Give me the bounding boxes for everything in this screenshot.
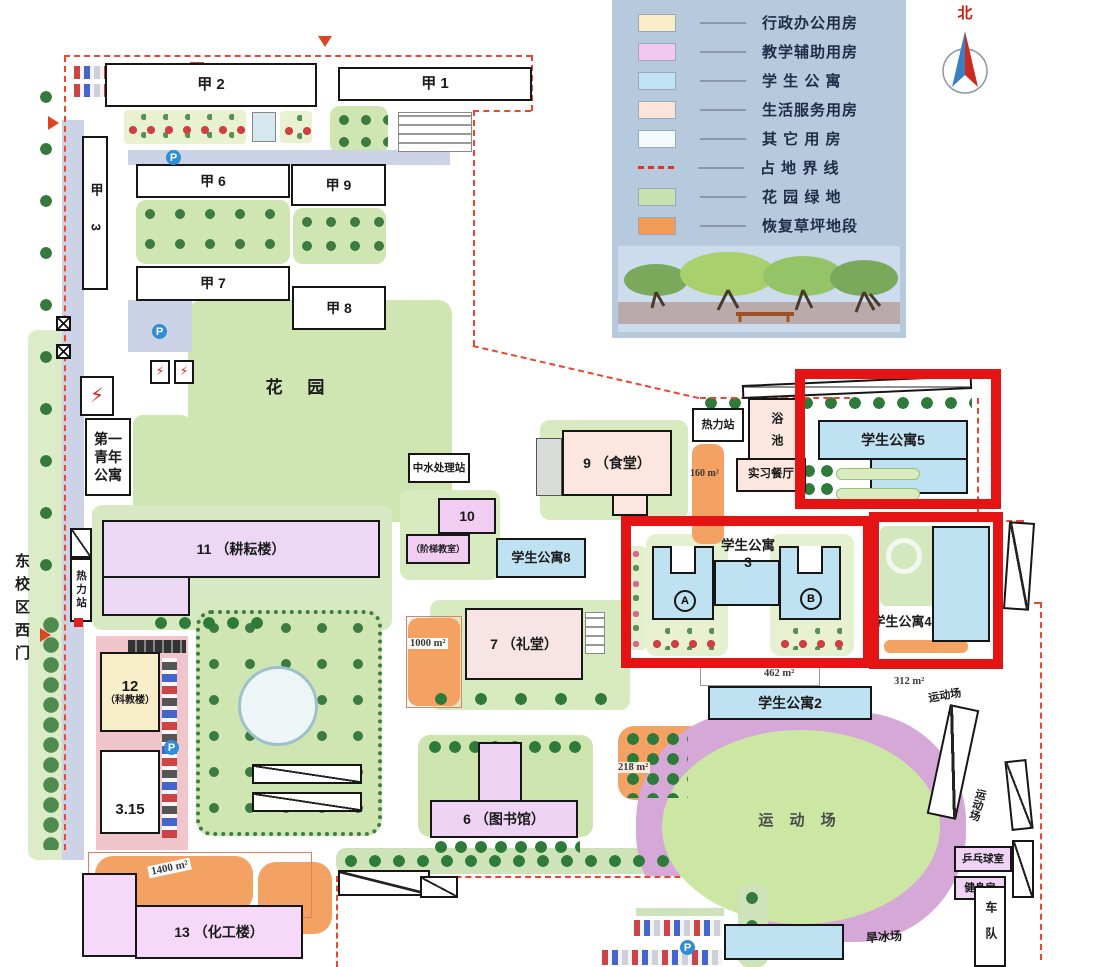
building-jia8: 甲 8 [292, 286, 386, 330]
parking-icon: P [164, 740, 179, 755]
legend-line [700, 22, 746, 24]
green-strip [636, 908, 724, 916]
fleet-label: 车队 [983, 901, 997, 953]
legend-row: 行政办公用房 [612, 8, 906, 37]
compass-needle-icon [935, 23, 995, 107]
power-box: ⚡ [150, 360, 170, 384]
legend-row: 花 园 绿 地 [612, 182, 906, 211]
building-canteen-wing [612, 494, 648, 516]
legend-line [698, 167, 744, 169]
small-building [1012, 840, 1034, 898]
gate-marker [318, 36, 332, 47]
skating-rink-label: 旱冰场 [856, 928, 913, 946]
legend-label: 行政办公用房 [762, 12, 858, 33]
area-label-160: 160 m² [690, 468, 719, 479]
building-dorm2: 学生公寓2 [708, 686, 872, 720]
garden-label: 花 园 [240, 378, 360, 398]
small-building [420, 876, 458, 898]
legend-label: 教学辅助用房 [762, 41, 858, 62]
stairs [585, 612, 605, 654]
small-building [338, 870, 430, 896]
flower-bed [124, 110, 246, 144]
heat-station-left-label: 热力站 [75, 570, 87, 611]
building-youth-apartment-label: 第一青年公寓 [92, 430, 124, 485]
legend-row: 恢复草坪地段 [612, 211, 906, 240]
area-label-1000: 1000 m² [408, 638, 448, 649]
legend-label: 生活服务用房 [762, 99, 858, 120]
legend-line [700, 196, 746, 198]
legend-row: 生活服务用房 [612, 95, 906, 124]
building-chem: 13 （化工楼） [135, 905, 303, 959]
boundary-right [1040, 602, 1042, 960]
building-dorm1 [724, 924, 844, 960]
boundary-seg [473, 345, 700, 399]
compass-north-label: 北 [930, 2, 1000, 23]
building-library: 6 （图书馆） [430, 800, 578, 838]
marker [74, 618, 83, 627]
highlight-box-dorm3 [621, 516, 873, 668]
tree-row [430, 688, 610, 710]
hedge-row [38, 615, 64, 850]
lightning-icon: ⚡ [90, 385, 104, 408]
lightning-icon: ⚡ [156, 365, 164, 379]
building-canteen: 9 （食堂） [562, 430, 672, 496]
stairs [398, 112, 472, 152]
small-building [1004, 759, 1033, 831]
legend-swatch-lawn [638, 217, 676, 235]
boundary-left [64, 56, 66, 850]
highlight-box-dorm4 [869, 512, 1003, 669]
legend-line [700, 109, 746, 111]
compass: 北 [930, 2, 1000, 106]
building-jia1: 甲 1 [338, 67, 532, 101]
legend-line [700, 51, 746, 53]
annex [536, 438, 562, 496]
building-jia9: 甲 9 [291, 164, 386, 206]
legend-swatch-admin [638, 14, 676, 32]
pool [252, 112, 276, 142]
building-12-number: 12 [122, 678, 139, 695]
building-library-stem [478, 742, 522, 806]
building-11: 11 （耕耘楼） [102, 520, 380, 578]
parked-cars [634, 920, 722, 936]
sports-field-label: 运 动 场 [730, 812, 870, 830]
building-heat-station-right: 热力站 [692, 408, 744, 442]
building-water-station: 中水处理站 [408, 453, 470, 483]
building-jia3: 甲 3 [82, 136, 108, 290]
building-12-name: （科教楼） [105, 695, 155, 707]
building-auditorium: 7 （礼堂） [465, 608, 583, 680]
sports-field-ne-label: 运动场 [919, 686, 971, 708]
building-12: 12 （科教楼） [100, 652, 160, 732]
garden-area [293, 208, 386, 264]
garden-square [330, 106, 388, 154]
legend-swatch-boundary [638, 166, 674, 169]
building-chem-wing [82, 873, 137, 957]
area-label-312: 312 m² [894, 676, 924, 687]
gate-marker [40, 628, 51, 642]
campus-map: 甲 2 甲 1 P 甲 3 甲 6 甲 9 甲 7 甲 8 P ⚡ ⚡ ⚡ 第一… [0, 0, 1095, 967]
building-youth-apartment: 第一青年公寓 [85, 418, 131, 496]
legend-swatch-other [638, 130, 676, 148]
building-lecture-hall: 10 [438, 498, 496, 534]
building-bath-label: 浴池 [769, 412, 783, 456]
garden-main [188, 300, 452, 522]
boundary-seg [473, 110, 475, 346]
highlight-box-dorm5 [795, 369, 1001, 509]
parking-icon: P [152, 324, 167, 339]
gate-marker [48, 116, 59, 130]
tree-row [34, 85, 58, 575]
lightning-icon: ⚡ [180, 365, 188, 379]
parking-icon: P [680, 940, 695, 955]
parked-cars [602, 950, 722, 965]
west-gate-label: 东校区西门 [12, 550, 30, 670]
building-jia7: 甲 7 [136, 266, 290, 301]
building-lecture-hall-lower: （阶梯教室） [406, 534, 470, 564]
area-label-218: 218 m² [616, 762, 650, 773]
flower-bed [280, 111, 312, 143]
legend-trees-illustration [618, 246, 900, 332]
pond [238, 666, 318, 746]
legend-label: 恢复草坪地段 [762, 215, 858, 236]
legend-line [700, 138, 746, 140]
tree-row [340, 850, 670, 872]
garden-area [136, 200, 290, 264]
area-label-462: 462 m² [764, 668, 794, 679]
building-dorm8: 学生公寓8 [496, 538, 586, 578]
legend-swatch-dorm [638, 72, 676, 90]
legend-label: 占 地 界 线 [760, 157, 840, 178]
boundary-seg [473, 110, 531, 112]
legend-swatch-teaching [638, 43, 676, 61]
legend-label: 花 园 绿 地 [762, 186, 842, 207]
power-box: ⚡ [80, 376, 114, 416]
building-315: 3.15 [100, 750, 160, 834]
small-building [70, 528, 92, 558]
legend-line [700, 225, 746, 227]
sports-field-e-label: 运动场 [962, 771, 991, 836]
legend-label: 其 它 用 房 [762, 128, 842, 149]
building-fleet: 车队 [974, 886, 1006, 967]
legend-line [700, 80, 746, 82]
small-building [1003, 521, 1035, 611]
legend-row: 其 它 用 房 [612, 124, 906, 153]
building-pingpong: 乒乓球室 [954, 846, 1012, 872]
building-jia2: 甲 2 [105, 63, 317, 107]
utility-box [56, 316, 71, 331]
legend-label: 学 生 公 寓 [762, 70, 842, 91]
legend-swatch-service [638, 101, 676, 119]
legend-row: 教学辅助用房 [612, 37, 906, 66]
building-jia3-label: 甲 3 [88, 183, 103, 243]
power-box: ⚡ [174, 360, 194, 384]
legend-panel: 行政办公用房 教学辅助用房 学 生 公 寓 生活服务用房 其 它 用 房 占 地… [612, 0, 906, 338]
parking-icon: P [166, 150, 181, 165]
building-heat-station-left: 热力站 [70, 558, 92, 622]
legend-row: 占 地 界 线 [612, 153, 906, 182]
legend-swatch-garden [638, 188, 676, 206]
boundary-top [64, 55, 532, 57]
legend-row: 学 生 公 寓 [612, 66, 906, 95]
pergola [252, 792, 362, 812]
building-jia6: 甲 6 [136, 164, 290, 198]
pergola [252, 764, 362, 784]
utility-box [56, 344, 71, 359]
